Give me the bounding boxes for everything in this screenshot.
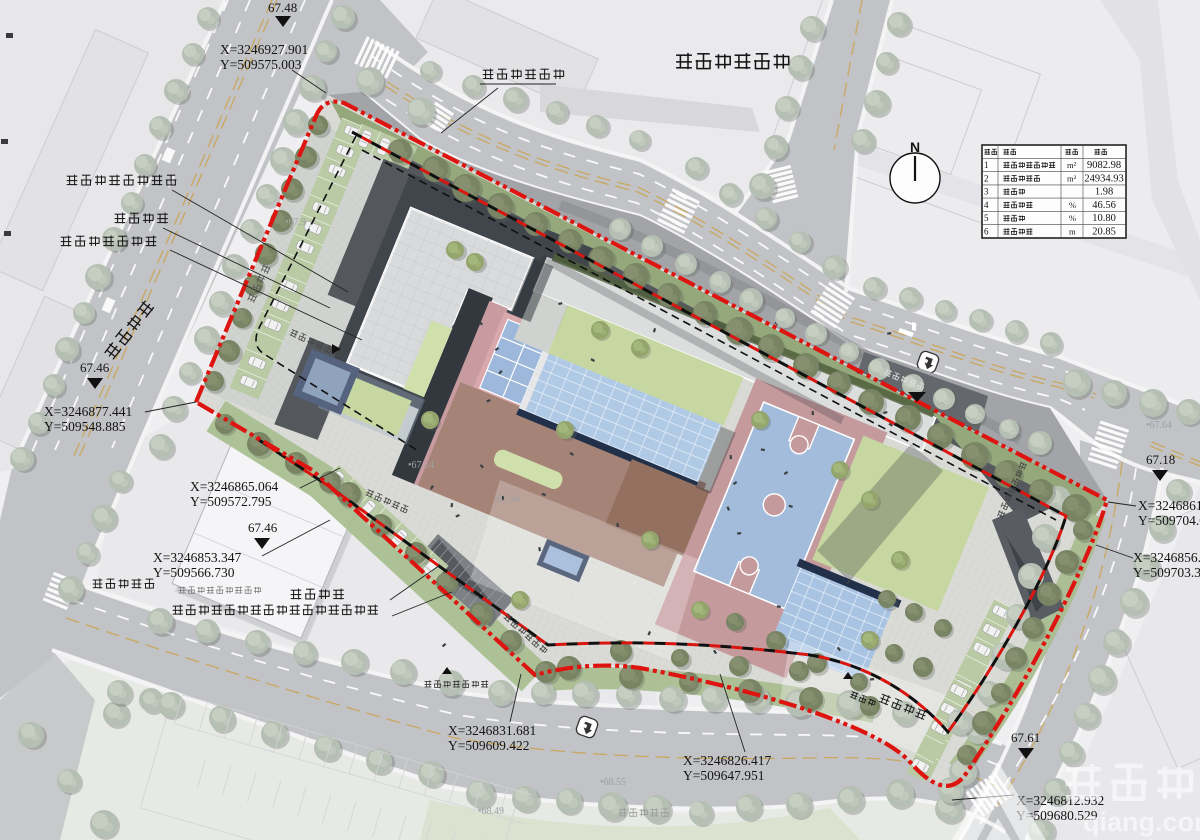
svg-text:67.18: 67.18	[1146, 452, 1175, 467]
svg-text:Y=509572.795: Y=509572.795	[190, 494, 272, 509]
svg-text:Y=509704.05: Y=509704.05	[1138, 513, 1200, 528]
svg-text:X=3246927.901: X=3246927.901	[220, 42, 308, 57]
svg-text:1: 1	[984, 160, 989, 170]
svg-text:5: 5	[984, 213, 989, 223]
svg-text:1.98: 1.98	[1095, 187, 1113, 198]
svg-text:24934.93: 24934.93	[1084, 173, 1123, 184]
svg-text:X=3246826.417: X=3246826.417	[683, 753, 771, 768]
svg-text:%: %	[1069, 213, 1076, 223]
svg-text:m²: m²	[1067, 173, 1077, 183]
svg-text:X=3246865.064: X=3246865.064	[190, 479, 278, 494]
svg-text:4: 4	[984, 200, 989, 210]
svg-text:X=3246856.97: X=3246856.97	[1133, 550, 1200, 565]
svg-text:46.56: 46.56	[1092, 200, 1116, 211]
svg-text:•67.46: •67.46	[494, 494, 520, 505]
svg-text:X=3246877.441: X=3246877.441	[44, 404, 132, 419]
svg-text:•68.55: •68.55	[600, 777, 626, 788]
svg-text:m²: m²	[1067, 160, 1077, 170]
svg-text:3: 3	[984, 187, 989, 197]
svg-text:20.85: 20.85	[1092, 227, 1116, 238]
svg-text:6: 6	[984, 227, 989, 237]
svg-text:Y=509609.422: Y=509609.422	[448, 738, 530, 753]
svg-text:Y=509575.003: Y=509575.003	[220, 57, 302, 72]
svg-text:10.80: 10.80	[1092, 213, 1116, 224]
svg-text:X=3246853.347: X=3246853.347	[153, 550, 241, 565]
svg-text:67.61: 67.61	[1011, 730, 1040, 745]
svg-text:qiang.com: qiang.com	[1083, 807, 1200, 837]
svg-text:Y=509647.951: Y=509647.951	[683, 768, 765, 783]
svg-text:•68.49: •68.49	[478, 806, 504, 817]
svg-text:•67.64: •67.64	[1146, 420, 1172, 431]
svg-text:67.46: 67.46	[80, 360, 110, 375]
svg-text:Y=509566.730: Y=509566.730	[153, 565, 235, 580]
svg-text:m: m	[1069, 227, 1076, 237]
svg-text:Y=509703.328: Y=509703.328	[1133, 565, 1200, 580]
svg-text:•67.54: •67.54	[408, 460, 434, 471]
svg-text:67.48: 67.48	[268, 0, 297, 15]
svg-text:9082.98: 9082.98	[1087, 160, 1121, 171]
svg-text:Y=509548.885: Y=509548.885	[44, 419, 126, 434]
svg-text:%: %	[1069, 200, 1076, 210]
svg-text:2: 2	[984, 173, 989, 183]
svg-text:X=3246861.1: X=3246861.1	[1138, 498, 1200, 513]
svg-text:X=3246831.681: X=3246831.681	[448, 723, 536, 738]
svg-text:•67.9: •67.9	[285, 217, 306, 228]
svg-text:67.46: 67.46	[248, 520, 278, 535]
svg-text:N: N	[910, 139, 920, 155]
